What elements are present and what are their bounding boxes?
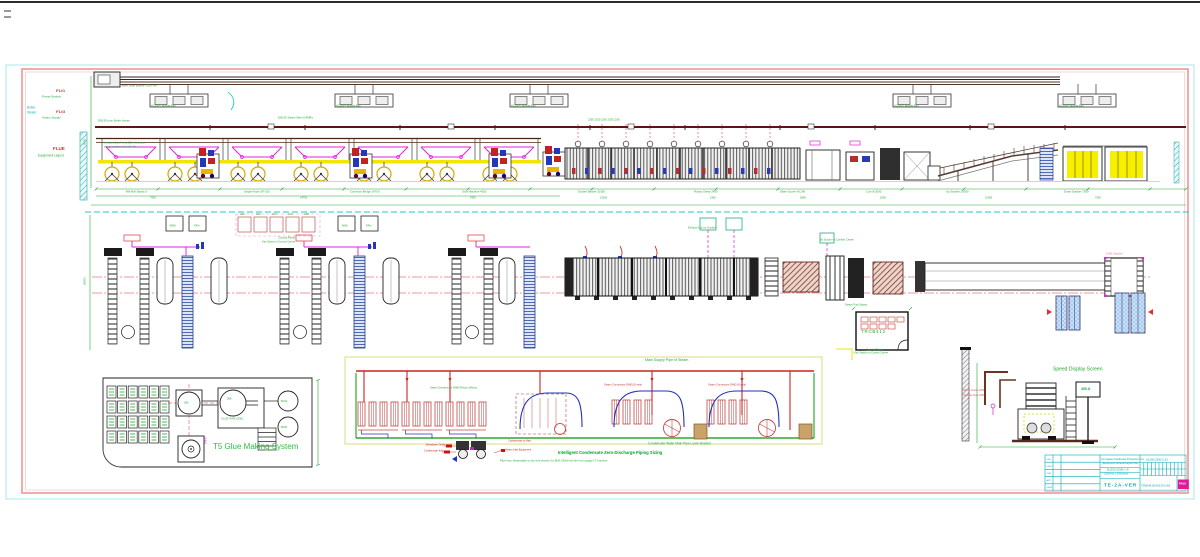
- dry-end-machines: [806, 141, 930, 180]
- drawing-canvas: [0, 0, 1200, 557]
- incline-conveyor: [928, 143, 1058, 181]
- exhaust-fans: [700, 218, 834, 258]
- condensate-unit: [707, 391, 812, 439]
- wall-section: [962, 349, 969, 441]
- cad-drawing-sheet: F1#1Power BusbarBoilerSteamF1#3Steam Sup…: [0, 0, 1200, 557]
- steam-drop-pipe: [985, 372, 1008, 405]
- roll-stack: [1026, 383, 1056, 409]
- glue-making-system: [103, 378, 320, 467]
- roll-stand-segment: [448, 235, 535, 348]
- busbar-box-group: [150, 84, 208, 107]
- glue-pump: [178, 436, 204, 462]
- dryer-section: [565, 124, 800, 179]
- title-block: [1045, 455, 1189, 491]
- mill-roll-stands: [105, 162, 517, 181]
- exit-conveyor: [915, 257, 1153, 333]
- roll-stand-segment: [104, 216, 227, 348]
- flash-tank: [516, 393, 582, 435]
- wall-column: [80, 132, 87, 200]
- top-band-elevation: [80, 72, 1188, 205]
- heat-exchanger-group: [446, 402, 486, 438]
- busbar-box-group: [335, 84, 393, 107]
- yellow-conveyor-strip: [98, 160, 541, 164]
- approval-stamp: [1178, 480, 1189, 490]
- operator-figure: [991, 404, 995, 408]
- speed-display-sign: [1076, 382, 1100, 444]
- control-room: [836, 307, 912, 360]
- wet-end-bridge: [96, 139, 541, 164]
- access-ladder: [1066, 396, 1076, 441]
- busbar-box-group: [510, 84, 568, 107]
- busbar-box-group: [893, 84, 951, 107]
- overhead-busbar: [94, 72, 1060, 87]
- middle-band-plan: [85, 212, 1190, 360]
- cyan-leader-arc: [228, 92, 234, 110]
- splicer-cluster: [350, 148, 372, 178]
- steam-piping-diagram: [345, 357, 822, 462]
- machine-body: [1012, 409, 1098, 441]
- single-facer-cluster: [543, 146, 565, 176]
- glue-stairs: [258, 428, 276, 450]
- dimension-chains-top: [91, 76, 1188, 205]
- splicer-cluster: [197, 148, 219, 178]
- slitter-cutoff-blocks: [765, 256, 903, 300]
- cardboard-stacks: [1063, 146, 1147, 181]
- heat-exchanger-group: [358, 402, 398, 438]
- glue-bag-grid-row: [107, 416, 169, 428]
- speed-display-elevation: [960, 347, 1117, 449]
- steam-hoses: [583, 246, 657, 259]
- splicer-cluster: [489, 148, 511, 178]
- glue-bag-grid-row: [107, 431, 169, 443]
- end-wall-strip: [1174, 142, 1179, 183]
- heat-exchanger-group: [402, 402, 442, 438]
- sheet-frame: [4, 10, 1194, 499]
- glue-bag-grid-row: [107, 401, 169, 413]
- condensate-unit: [612, 391, 707, 439]
- steam-main-pipe: [95, 124, 1186, 130]
- control-panel-cluster: [236, 214, 320, 236]
- busbar-box-group: [1058, 84, 1116, 107]
- dryer-table-plan: [565, 258, 758, 300]
- glue-bag-grid-row: [107, 386, 169, 398]
